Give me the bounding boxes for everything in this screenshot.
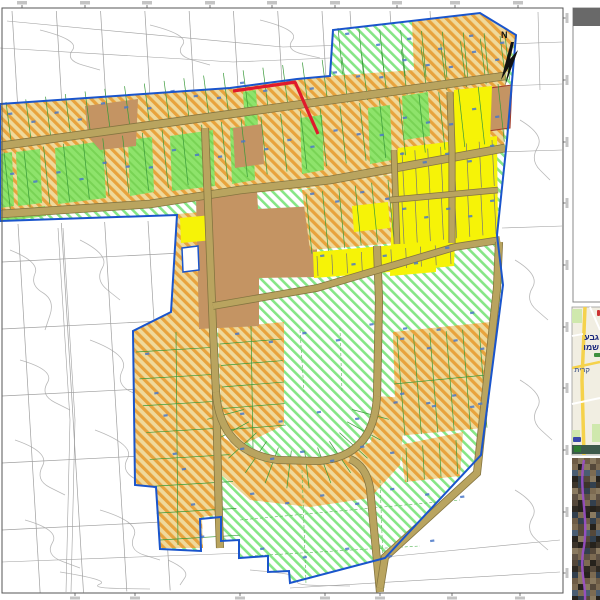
plan-viewer: { "palette":{ "paper":"#ffffff","frame":… <box>0 0 600 600</box>
zone-yellow-parcels <box>352 202 390 232</box>
north-label: N <box>501 30 508 40</box>
zone-green-parcel <box>55 141 106 204</box>
legend-panel-header <box>573 8 600 26</box>
locator-town-label-1: שמו <box>583 342 599 352</box>
aerial-photo-thumbnail[interactable] <box>572 458 600 600</box>
legend-panel <box>573 8 600 302</box>
locator-map-thumbnail[interactable]: גבעשמוקרית <box>572 307 600 455</box>
plan-map-canvas[interactable]: N גבעשמוקרית <box>0 0 600 600</box>
zone-green-parcel <box>402 92 430 140</box>
zone-orange-block-east <box>393 322 490 436</box>
locator-town-label-0: גבע <box>584 332 599 342</box>
zone-yellow-parcels <box>452 86 492 144</box>
zone-special-parcel <box>182 246 199 272</box>
locator-town-label-2: קרית <box>574 367 590 374</box>
zone-brown-parcel <box>233 124 264 168</box>
